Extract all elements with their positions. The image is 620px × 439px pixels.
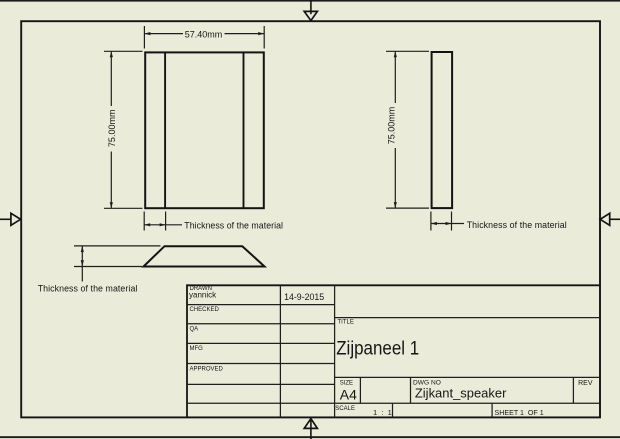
svg-text:TITLE: TITLE <box>338 320 354 326</box>
svg-text:APPROVED: APPROVED <box>190 366 224 372</box>
svg-text:Thickness of the material: Thickness of the material <box>184 220 283 230</box>
svg-text:SHEET 1 OF 1: SHEET 1 OF 1 <box>495 409 544 417</box>
svg-text:SIZE: SIZE <box>340 380 353 386</box>
svg-text:CHECKED: CHECKED <box>190 307 220 313</box>
svg-text:yannick: yannick <box>189 290 217 299</box>
svg-text:75.00mm: 75.00mm <box>386 107 396 145</box>
svg-text:REV: REV <box>578 380 593 387</box>
svg-text:Thickness of the material: Thickness of the material <box>467 220 567 230</box>
svg-text:Zijkant_speaker: Zijkant_speaker <box>415 386 507 401</box>
svg-text:57.40mm: 57.40mm <box>185 29 223 39</box>
svg-text:Thickness of the material: Thickness of the material <box>38 283 138 293</box>
svg-text:75.00mm: 75.00mm <box>107 110 117 148</box>
svg-text:14-9-2015: 14-9-2015 <box>284 292 324 302</box>
svg-text:QA: QA <box>190 327 199 333</box>
svg-text:A4: A4 <box>340 386 357 402</box>
svg-text:1 : 1: 1 : 1 <box>373 408 392 417</box>
svg-text:MFG: MFG <box>190 346 204 352</box>
svg-text:Zijpaneel 1: Zijpaneel 1 <box>336 338 419 359</box>
svg-text:SCALE: SCALE <box>335 406 355 412</box>
